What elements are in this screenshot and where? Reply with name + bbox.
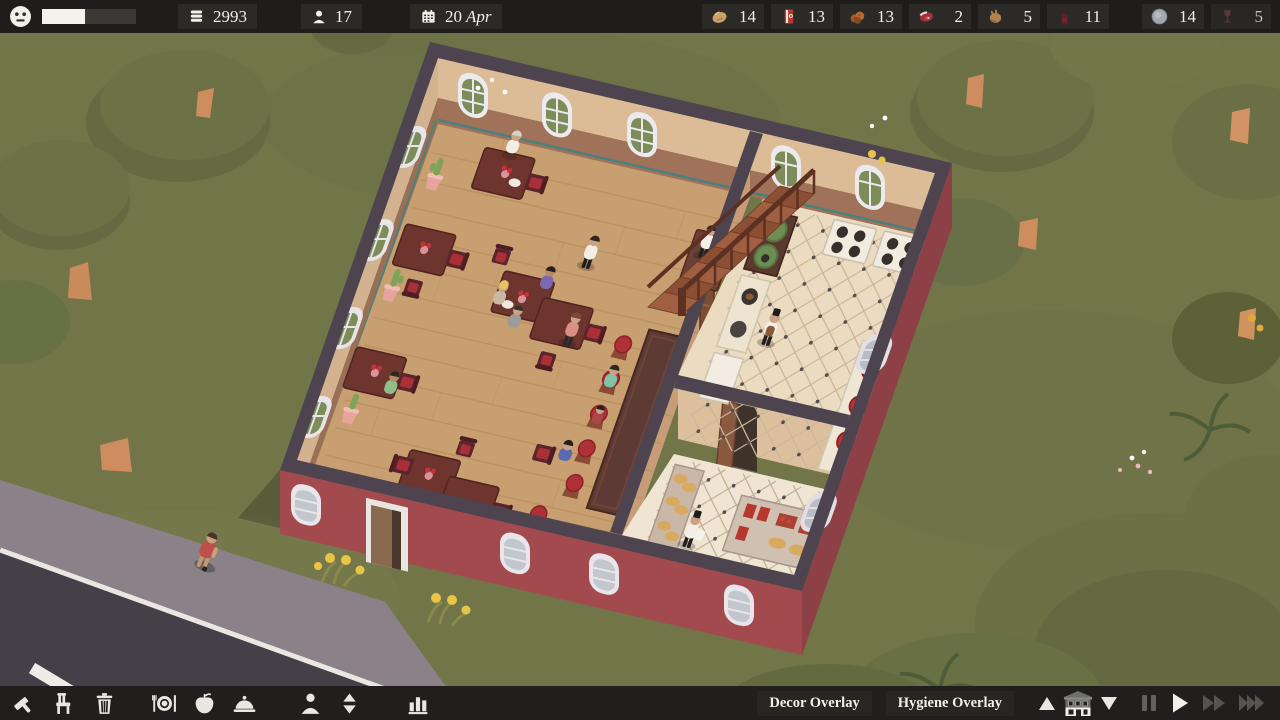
staff-priorities-button[interactable] (338, 691, 361, 716)
coin-stack-icon (188, 8, 205, 25)
steak-icon (917, 7, 936, 26)
fastest-forward-icon (1238, 693, 1266, 713)
menu-tool-button[interactable] (151, 691, 178, 716)
bread-icon (710, 7, 729, 26)
play-icon (1170, 692, 1190, 714)
poultry-icon (986, 7, 1005, 26)
speed-controls (1140, 692, 1270, 714)
wine-glass-count: 5 (1243, 7, 1263, 27)
floor-indicator-building-icon (1062, 690, 1094, 717)
poultry-count: 5 (1012, 7, 1032, 27)
furniture-tool-button[interactable] (51, 691, 76, 716)
game-world-viewport[interactable] (0, 0, 1280, 720)
serving-tool-button[interactable] (231, 691, 258, 716)
trash-icon (92, 691, 117, 716)
reputation-progress-fill (42, 9, 85, 24)
plate-icon (1150, 7, 1169, 26)
canned-goods-count: 13 (805, 7, 825, 27)
resource-plate[interactable]: 14 (1142, 4, 1204, 29)
date-display[interactable]: 20Apr (410, 4, 502, 29)
plate-cutlery-icon (151, 691, 178, 716)
apple-icon (192, 691, 217, 716)
wine-glass-icon (1219, 8, 1236, 25)
resource-counters: 14 13 13 2 5 11 14 5 (702, 4, 1271, 29)
wine-bottle-icon (1055, 7, 1074, 26)
decor-overlay-button[interactable]: Decor Overlay (757, 691, 871, 716)
date-day: 20 (445, 7, 462, 27)
bread-count: 14 (736, 7, 756, 27)
money-value: 2993 (213, 7, 247, 27)
ingredients-tool-button[interactable] (192, 691, 217, 716)
vegetables-icon (848, 7, 867, 26)
staff-person-icon (298, 691, 323, 716)
triangle-down-icon (1100, 696, 1118, 711)
hygiene-overlay-button[interactable]: Hygiene Overlay (886, 691, 1014, 716)
money-counter[interactable]: 2993 (178, 4, 257, 29)
reputation-progress-bar[interactable] (42, 9, 136, 24)
cloche-icon (231, 691, 258, 716)
guest-count: 17 (335, 7, 352, 27)
floor-selector (1038, 690, 1118, 717)
hammer-icon (10, 691, 35, 716)
plate-count: 14 (1176, 7, 1196, 27)
fast-forward-button[interactable] (1202, 693, 1226, 713)
pause-button[interactable] (1140, 693, 1158, 713)
top-left-stats: 2993 17 20Apr (9, 4, 502, 29)
resource-poultry[interactable]: 5 (978, 4, 1040, 29)
wine-bottle-count: 11 (1081, 7, 1101, 27)
resource-steak[interactable]: 2 (909, 4, 971, 29)
floor-up-button[interactable] (1038, 696, 1056, 711)
build-tool-button[interactable] (10, 691, 35, 716)
top-hud-bar: 2993 17 20Apr 14 13 13 (0, 0, 1280, 33)
mood-face-icon[interactable] (9, 5, 32, 28)
play-button[interactable] (1170, 692, 1190, 714)
fast-forward-icon (1202, 693, 1226, 713)
vegetables-count: 13 (874, 7, 894, 27)
bar-chart-icon (405, 691, 431, 716)
statistics-button[interactable] (405, 691, 431, 716)
calendar-icon (420, 8, 437, 25)
chair-icon (51, 691, 76, 716)
triangle-up-icon (1038, 696, 1056, 711)
fastest-forward-button[interactable] (1238, 693, 1266, 713)
demolish-tool-button[interactable] (92, 691, 117, 716)
steak-count: 2 (943, 7, 963, 27)
resource-wine-bottle[interactable]: 11 (1047, 4, 1109, 29)
staff-tool-button[interactable] (298, 691, 323, 716)
guest-counter[interactable]: 17 (301, 4, 362, 29)
canned-goods-icon (779, 7, 798, 26)
bottom-toolbar: Decor Overlay Hygiene Overlay (0, 686, 1280, 720)
resource-bread[interactable]: 14 (702, 4, 764, 29)
resource-wine-glass[interactable]: 5 (1211, 4, 1271, 29)
resource-vegetables[interactable]: 13 (840, 4, 902, 29)
resource-canned-goods[interactable]: 13 (771, 4, 833, 29)
person-icon (311, 9, 327, 25)
game-screen: { "hud_top": { "mood_icon": "neutral-fac… (0, 0, 1280, 720)
floor-down-button[interactable] (1100, 696, 1118, 711)
up-down-arrows-icon (338, 691, 361, 716)
date-month: Apr (466, 7, 492, 27)
pause-icon (1140, 693, 1158, 713)
